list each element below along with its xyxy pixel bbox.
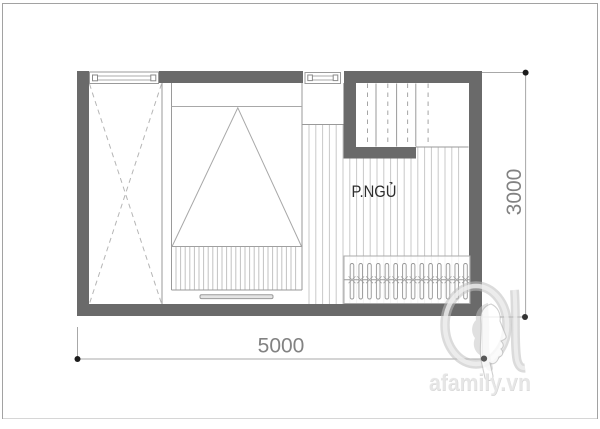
svg-text:P.NGỦ: P.NGỦ [352, 182, 397, 201]
svg-text:afamily.vn: afamily.vn [429, 370, 531, 397]
svg-text:3000: 3000 [503, 169, 526, 216]
svg-text:5000: 5000 [258, 335, 305, 358]
